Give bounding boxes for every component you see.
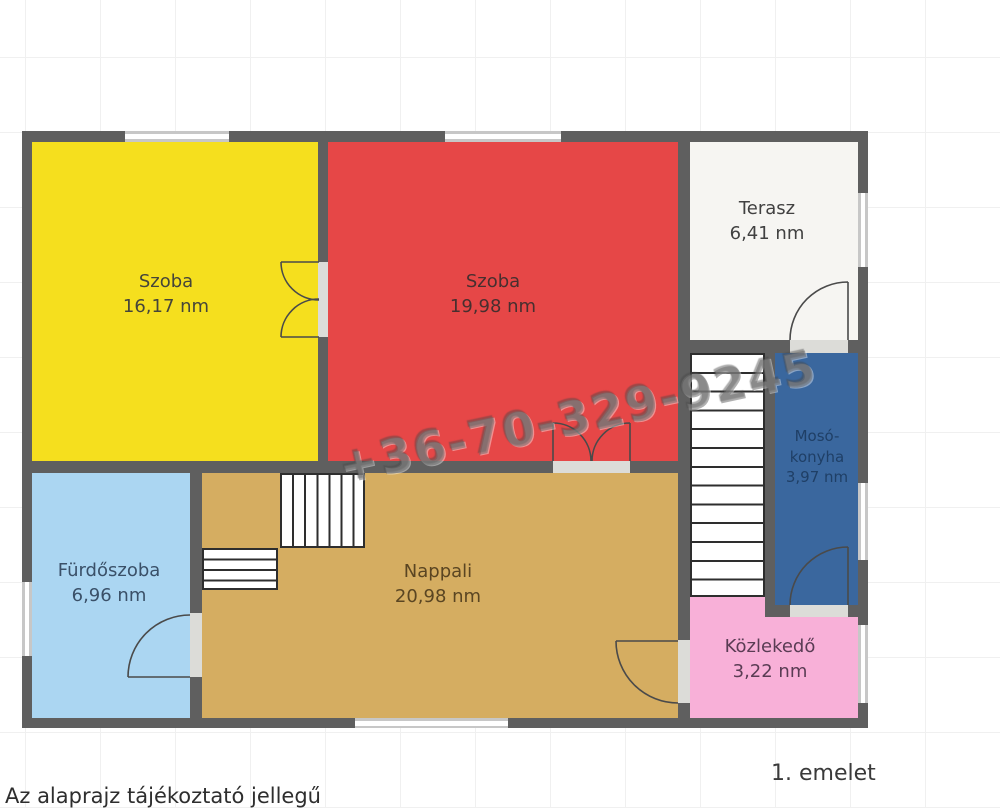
staircase-upper-flight: [690, 353, 765, 597]
room-nappali: [202, 473, 678, 718]
window-bottom-nappali: [355, 718, 508, 728]
window-top-szoba2: [445, 131, 561, 142]
room-terasz: [690, 142, 858, 340]
window-right-moso: [858, 483, 868, 560]
wall-right-spine: [678, 142, 690, 718]
door-szoba2-nappali: [553, 461, 630, 473]
wall-furdoszoba-nappali: [190, 473, 202, 718]
room-szoba-1: [32, 142, 318, 461]
door-terasz: [790, 340, 848, 353]
window-right-kozlekedo: [858, 625, 868, 703]
room-szoba-2: [328, 142, 678, 461]
door-furdoszoba: [190, 613, 202, 677]
room-moso-konyha: [775, 353, 858, 605]
window-left-furdoszoba: [22, 582, 32, 656]
window-right-terasz: [858, 193, 868, 267]
room-furdoszoba: [32, 473, 190, 718]
floor-plan-canvas: Szoba16,17 nm Szoba19,98 nm Terasz6,41 n…: [0, 0, 1000, 808]
staircase-mid-flight: [280, 473, 365, 548]
wall-stairs-moso: [765, 353, 775, 617]
window-top-szoba1: [125, 131, 229, 142]
disclaimer-text: Az alaprajz tájékoztató jellegű: [5, 784, 321, 808]
door-nappali-kozlekedo: [678, 640, 690, 703]
door-szoba1-szoba2: [318, 262, 328, 337]
room-kozlekedo-main: [690, 617, 858, 718]
door-moso-kozlekedo: [790, 605, 848, 617]
staircase-lower-flight: [202, 548, 278, 590]
floor-level-label: 1. emelet: [771, 761, 876, 786]
